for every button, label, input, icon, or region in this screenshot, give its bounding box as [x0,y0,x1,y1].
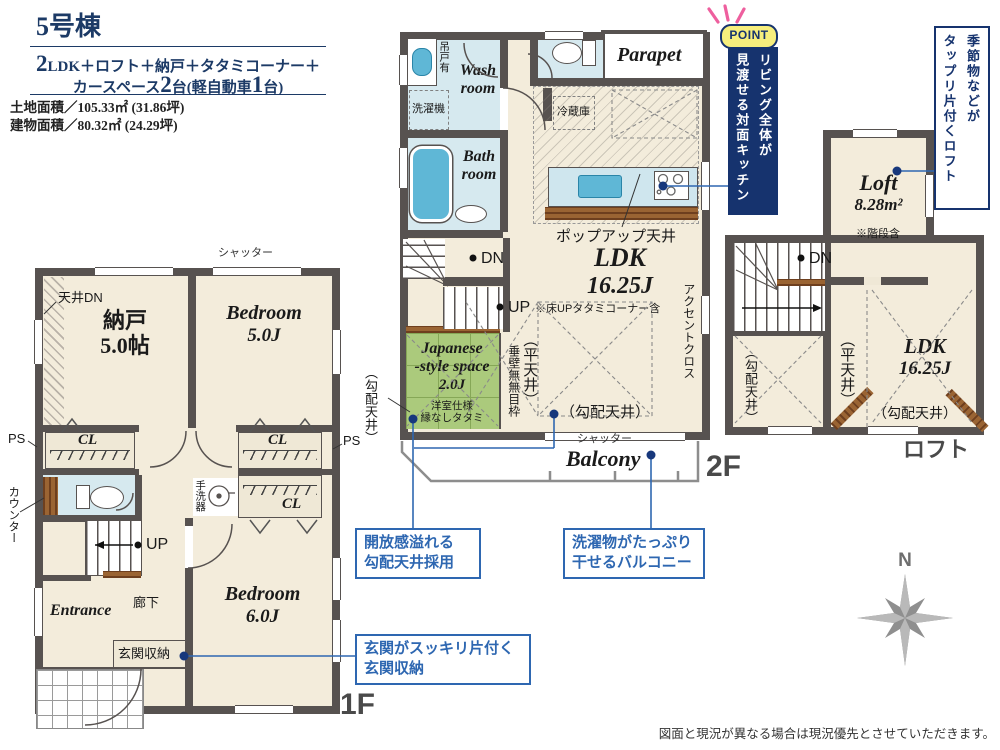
land-area: 土地面積／105.33㎡ (31.86坪) [10,100,184,116]
tatami-note: ※床UPタタミコーナー含 [535,303,660,316]
closet-rod [243,450,317,460]
stair-threshold-1f [103,571,141,578]
counter-label: カウンター [6,486,19,544]
ps-left-label: PS [8,432,25,447]
compass-n-label: N [898,550,912,571]
callout-sloped-ceiling: 開放感溢れる 勾配天井採用 [355,528,481,579]
wall [188,276,196,428]
callout-balcony-line2: 干せるバルコニー [572,553,696,573]
loft-label: Loft 8.28m² [823,170,934,215]
wall [443,277,503,286]
ldk-name: LDK [540,243,700,273]
wall [530,32,538,78]
shutter-label-2f: シャッター [577,433,632,446]
fridge-label: 冷蔵庫 [557,106,590,119]
stairs-1f [85,520,142,576]
toilet-tank-2f [582,40,596,66]
dn-label-2f: DN [481,250,504,268]
loft-entry-opening [864,277,881,285]
bedroom5-label: Bedroom 5.0J [196,302,332,347]
loft-callout-line-2: タップリ片付くロフト [937,34,960,202]
japanese-room-name2: -style space [404,358,500,376]
laundry-label: 洗濯機 [412,103,445,116]
japanese-room-note1: 洋室仕様 [404,400,500,412]
callout-genkan-line2: 玄関収納 [364,659,522,679]
bath-drain [455,205,487,223]
window [332,330,341,374]
window [868,426,918,435]
japanese-room-name1: Japanese [404,340,500,358]
flat-ceiling-label-2f: （平天井） [521,332,538,407]
window [701,162,710,210]
ldk-size: 16.25J [540,273,700,301]
sloped-ceiling-loft-bottom: （勾配天井） [873,405,957,421]
window [399,55,408,85]
window [545,31,583,40]
title-divider-2 [30,94,326,95]
window [853,129,897,138]
wall [236,425,333,432]
storage-size: 5.0帖 [62,333,188,358]
title-divider-1 [30,46,326,47]
hanging-cabinet-label: 吊戸有 [438,41,450,73]
wash-basin [412,48,432,76]
dn-label-loft: DN [809,250,832,268]
wall [135,475,142,518]
window [332,558,341,600]
hallway-label: 廊下 [133,596,159,611]
wall [530,78,705,86]
disclaimer: 図面と現況が異なる場合は現況優先とさせていただきます。 [480,727,995,741]
sloped-ceiling-left-label: （勾配天井） [362,366,377,444]
toilet-counter [43,477,58,516]
closet-right-label: CL [268,432,287,449]
stove [654,171,689,200]
kitchen-sink [578,175,622,198]
callout-balcony: 洗濯物がたっぷり 干せるバルコニー [563,528,705,579]
window [768,426,812,435]
toilet-tank-1f [76,485,90,509]
wall [403,130,500,138]
bedroom6-label: Bedroom 6.0J [193,583,332,628]
loft-name: Loft [823,170,934,195]
parapet-label: Parapet [617,44,681,67]
genkan-storage-label: 玄関収納 [118,647,170,662]
closet-bed6 [238,475,322,518]
sloped-ceiling-loft-left: （勾配天井） [742,346,757,424]
storage-label: 納戸 5.0帖 [62,308,188,359]
bedroom5-room [196,276,332,425]
point-line-2: 見渡せる対面キッチン [730,53,753,209]
closet-left-label: CL [78,432,97,449]
bathroom-label: Bath room [452,148,506,185]
window [213,267,301,276]
stair-threshold-loft [777,279,825,286]
wall [403,230,503,238]
japanese-room-note: 洋室仕様 縁なしタタミ [404,400,500,424]
point-line-1: リビング全体が [752,53,775,209]
window [399,148,408,188]
callout-genkan: 玄関がスッキリ片付く 玄関収納 [355,634,531,685]
hand-basin-label: 手洗器 [194,480,206,512]
building-area: 建物面積／80.32㎡ (24.29坪) [10,118,178,134]
balcony-outline [402,441,698,481]
loft-ldk-label: LDK 16.25J [880,334,970,380]
floor1-label: 1F [340,688,375,723]
japanese-room-label: Japanese -style space 2.0J [404,340,500,394]
window-shutter [235,705,293,714]
entrance-label: Entrance [50,602,111,620]
callout-balcony-line1: 洗濯物がたっぷり [572,533,696,553]
bedroom5-name: Bedroom [196,302,332,325]
window [34,588,43,636]
washroom-label: Wash room [450,62,506,99]
flat-ceiling-loft: （平天井） [838,332,855,407]
bedroom6-name: Bedroom [193,583,332,606]
window [34,320,43,364]
up-label-1f: UP [146,536,168,554]
stairs-2f-upper [403,239,445,279]
kitchen-floor-strip [545,207,698,220]
loft-note-label: ※階段含 [856,228,900,241]
loft-ldk-size: 16.25J [880,358,970,380]
storage-name: 納戸 [62,308,188,333]
sloped-ceiling-label-2f: （勾配天井） [560,404,650,421]
porch-tiles [36,669,144,729]
point-badge: POINT [720,24,778,49]
wall [43,575,91,581]
sparkle-icon [709,6,744,22]
wall [43,425,139,432]
popup-ceiling-label: ポップアップ天井 [556,228,676,245]
loft-callout-line-1: 季節物などが [961,34,984,202]
window [95,267,173,276]
page-title: 5号棟 [36,12,101,42]
callout-sloped-line2: 勾配天井採用 [364,553,472,573]
loft-floor-label: ロフト [903,437,969,462]
loft-ldk-name: LDK [880,334,970,358]
no-hanging-wall-label: 垂壁無無目枠 [506,345,520,417]
toilet-bowl-1f [90,486,124,509]
callout-sloped-line1: 開放感溢れる [364,533,472,553]
japanese-room-note2: 縁なしタタミ [404,412,500,424]
ldk-label-2f: LDK 16.25J [540,243,700,300]
ceiling-dn-label: 天井DN [58,291,103,306]
door-opening [185,526,193,568]
shutter-label-1f: シャッター [218,247,273,260]
loft-callout: 季節物などが タップリ片付くロフト [934,26,990,210]
point-callout: リビング全体が 見渡せる対面キッチン [728,47,778,215]
compass-star [857,574,953,666]
up-label-2f: UP [508,299,530,317]
closet-rod [243,485,317,495]
japanese-room-size: 2.0J [404,377,500,394]
loft-area: 8.28m² [823,195,934,215]
closet-bed6-label: CL [282,496,301,513]
toilet-bowl-2f [552,42,582,64]
bedroom6-size: 6.0J [193,606,332,628]
bedroom5-size: 5.0J [196,325,332,347]
balcony-label: Balcony [566,446,641,471]
callout-genkan-line1: 玄関がスッキリ片付く [364,639,522,659]
floor-plan-sheet: 5号棟 2LDK＋ロフト＋納戸＋タタミコーナー＋ カースペース2台(軽自動車1台… [0,0,1000,750]
ps-right-label: PS [343,434,360,449]
floor2-label: 2F [706,450,741,485]
window [332,620,341,662]
window [701,296,710,334]
stairs-2f-lower [443,287,503,329]
closet-rod [50,450,130,460]
bathtub [410,146,452,222]
